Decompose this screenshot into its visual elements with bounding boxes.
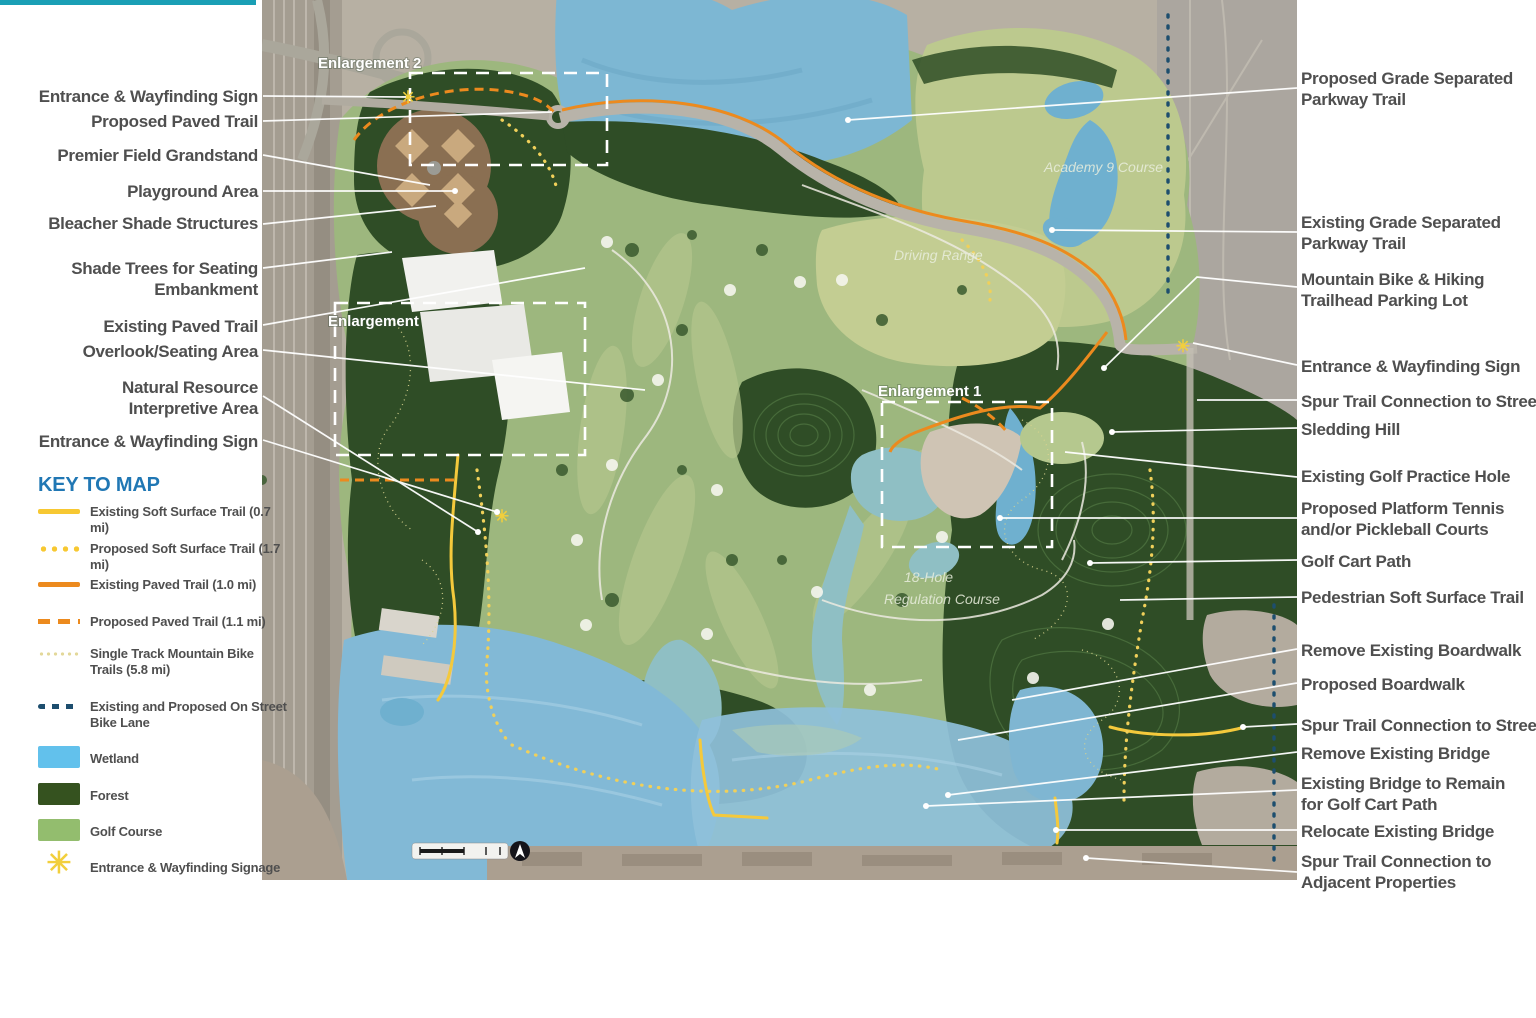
course-label-line1: 18-Hole: [904, 569, 953, 585]
wayfinding-star-icon: ✳: [1176, 337, 1190, 356]
callout-mountain-bike-trailhead-parking: Mountain Bike & HikingTrailhead Parking …: [1301, 269, 1536, 311]
callout-platform-tennis-pickleball: Proposed Platform Tennisand/or Picklebal…: [1301, 498, 1536, 540]
wayfinding-star-icon: ✳: [38, 852, 80, 876]
callout-pedestrian-soft-surface-trail: Pedestrian Soft Surface Trail: [1301, 587, 1536, 608]
legend-proposed-paved-trail: Proposed Paved Trail (1.1 mi): [38, 614, 266, 630]
park-master-plan-page: Enlargement 2 Enlargement Enlargement 1 …: [0, 0, 1536, 1018]
callout-relocate-existing-bridge: Relocate Existing Bridge: [1301, 821, 1536, 842]
callout-shade-trees-embankment: Shade Trees for SeatingEmbankment: [8, 258, 258, 300]
wayfinding-star-icon: ✳: [401, 88, 415, 107]
driving-range-label: Driving Range: [894, 247, 983, 263]
callout-remove-existing-boardwalk: Remove Existing Boardwalk: [1301, 640, 1536, 661]
legend-single-track-trails: Single Track Mountain Bike Trails (5.8 m…: [38, 646, 288, 678]
legend-proposed-soft-surface-trail: Proposed Soft Surface Trail (1.7 mi): [38, 541, 288, 573]
yellow-solid-line-icon: [38, 509, 80, 514]
callout-golf-cart-path: Golf Cart Path: [1301, 551, 1536, 572]
legend-forest: Forest: [38, 785, 129, 805]
legend-existing-soft-surface-trail: Existing Soft Surface Trail (0.7 mi): [38, 504, 288, 536]
course-label-line2: Regulation Course: [884, 591, 1000, 607]
page-title-strip: [0, 0, 256, 5]
legend-wetland: Wetland: [38, 748, 139, 768]
callout-overlook-seating-area: Overlook/Seating Area: [8, 341, 258, 362]
legend-title: KEY TO MAP: [38, 474, 288, 497]
callout-existing-golf-practice-hole: Existing Golf Practice Hole: [1301, 466, 1536, 487]
callout-spur-trail-street-1: Spur Trail Connection to Street: [1301, 391, 1536, 412]
callout-spur-trail-adjacent-properties: Spur Trail Connection toAdjacent Propert…: [1301, 851, 1536, 893]
orange-dashed-line-icon: [38, 619, 80, 624]
callout-existing-paved-trail: Existing Paved Trail: [8, 316, 258, 337]
academy-9-label: Academy 9 Course: [1043, 159, 1163, 175]
map-legend: KEY TO MAP Existing Soft Surface Trail (…: [38, 474, 288, 507]
forest-swatch: [38, 783, 80, 805]
callout-natural-resource-interpretive-area: Natural ResourceInterpretive Area: [8, 377, 258, 419]
golf-course-swatch: [38, 819, 80, 841]
aerial-map: Enlargement 2 Enlargement Enlargement 1 …: [262, 0, 1297, 880]
thin-dotted-line-icon: [38, 652, 80, 656]
blue-dashed-line-icon: [38, 704, 80, 709]
legend-existing-paved-trail: Existing Paved Trail (1.0 mi): [38, 577, 256, 593]
callout-playground-area: Playground Area: [8, 181, 258, 202]
wayfinding-star-icon: ✳: [495, 507, 509, 526]
callout-existing-grade-separated-parkway-trail: Existing Grade SeparatedParkway Trail: [1301, 212, 1536, 254]
callout-premier-field-grandstand: Premier Field Grandstand: [8, 145, 258, 166]
orange-solid-line-icon: [38, 582, 80, 587]
legend-on-street-bike-lane: Existing and Proposed On Street Bike Lan…: [38, 699, 288, 731]
callout-entrance-wayfinding-sign-1: Entrance & Wayfinding Sign: [8, 86, 258, 107]
callout-proposed-grade-separated-parkway-trail: Proposed Grade SeparatedParkway Trail: [1301, 68, 1536, 110]
yellow-dotted-line-icon: [38, 546, 80, 552]
callout-spur-trail-street-2: Spur Trail Connection to Street: [1301, 715, 1536, 736]
callout-proposed-boardwalk: Proposed Boardwalk: [1301, 674, 1536, 695]
enlargement-1-label: Enlargement 1: [878, 383, 981, 400]
aerial-map-svg: Enlargement 2 Enlargement Enlargement 1 …: [262, 0, 1297, 880]
wetland-swatch: [38, 746, 80, 768]
enlargement-mid-label: Enlargement: [328, 313, 419, 330]
callout-existing-bridge-to-remain: Existing Bridge to Remainfor Golf Cart P…: [1301, 773, 1536, 815]
callout-proposed-paved-trail: Proposed Paved Trail: [8, 111, 258, 132]
callout-entrance-wayfinding-sign-2: Entrance & Wayfinding Sign: [8, 431, 258, 452]
callout-sledding-hill: Sledding Hill: [1301, 419, 1536, 440]
callout-remove-existing-bridge: Remove Existing Bridge: [1301, 743, 1536, 764]
enlargement-2-label: Enlargement 2: [318, 55, 421, 72]
legend-golf-course: Golf Course: [38, 821, 162, 841]
legend-entrance-wayfinding-signage: ✳ Entrance & Wayfinding Signage: [38, 856, 280, 876]
callout-entrance-wayfinding-sign-right: Entrance & Wayfinding Sign: [1301, 356, 1536, 377]
callout-bleacher-shade-structures: Bleacher Shade Structures: [8, 213, 258, 234]
